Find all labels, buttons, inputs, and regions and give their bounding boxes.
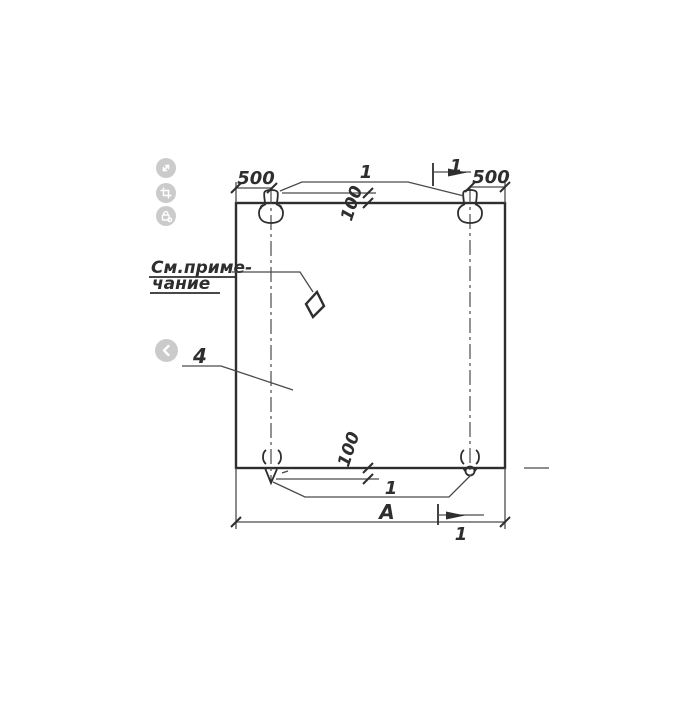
dim-100-top-label: 100 [337,183,367,223]
dimension-500-right: 500 [465,167,510,192]
protect-button[interactable] [156,206,176,226]
dim-100-bottom-label: 100 [334,429,364,469]
technical-drawing: 500 500 100 100 А 1 1 [0,0,700,700]
crop-icon [159,186,173,200]
loop-centerlines [271,188,470,483]
panel-outline [236,203,505,468]
expand-icon [159,161,173,175]
lock-icon [159,209,173,223]
previous-button[interactable] [155,339,178,362]
callout-panel: 4 [182,344,293,390]
section-mark-bottom-label: 1 [455,524,468,545]
callout-panel-label: 4 [192,344,207,368]
chevron-left-icon [159,343,174,358]
crop-button[interactable] [156,183,176,203]
expand-button[interactable] [156,158,176,178]
section-mark-top: 1 [433,156,471,186]
callout-loops-top-label: 1 [360,162,373,183]
callout-loops-top: 1 [280,162,464,196]
callout-loops-bottom: 1 [273,474,472,499]
note-callout: См.приме- чание [149,258,313,294]
dimension-500-left: 500 [231,168,277,193]
lifting-loop-bottom-left [263,450,288,483]
diamond-symbol [306,292,324,317]
section-mark-bottom: 1 [438,504,484,545]
dim-500-left-label: 500 [237,168,275,189]
section-mark-top-label: 1 [450,156,463,177]
dim-500-right-label: 500 [472,167,510,188]
dimension-overall-width: А [231,500,510,527]
drawing-viewport: 500 500 100 100 А 1 1 [0,0,700,700]
dimension-100-bottom: 100 [276,429,379,484]
dim-width-label: А [377,500,394,524]
callout-loops-bottom-label: 1 [385,478,398,499]
